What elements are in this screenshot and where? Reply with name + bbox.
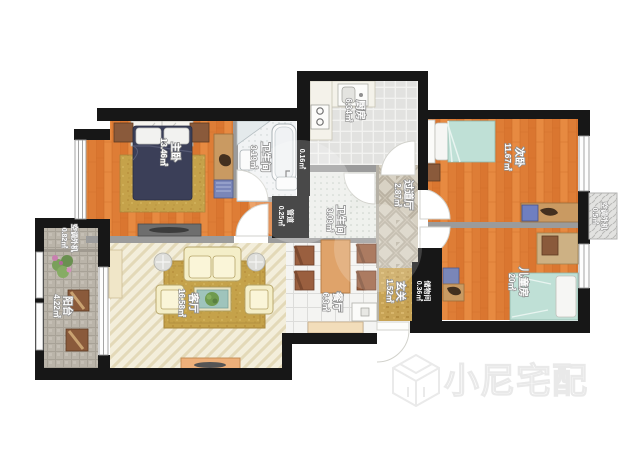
svg-text:主卧: 主卧 [169,142,182,162]
svg-text:过道厅: 过道厅 [402,180,415,210]
svg-text:0.5㎡: 0.5㎡ [591,208,600,225]
svg-text:0.16㎡: 0.16㎡ [298,149,307,170]
svg-text:次卧: 次卧 [513,147,526,167]
svg-text:阳台: 阳台 [61,296,74,316]
svg-text:卫生间: 卫生间 [259,142,272,172]
svg-text:储物间: 储物间 [423,280,432,302]
svg-text:3.09㎡: 3.09㎡ [325,208,335,232]
svg-text:11.67㎡: 11.67㎡ [503,143,513,171]
svg-text:6.34㎡: 6.34㎡ [344,98,354,122]
svg-text:0.36㎡: 0.36㎡ [415,281,424,302]
svg-text:4.22㎡: 4.22㎡ [52,294,62,318]
svg-text:管道: 管道 [286,209,295,223]
svg-text:1.52㎡: 1.52㎡ [385,279,395,303]
svg-text:空调外机: 空调外机 [600,202,609,230]
svg-text:6.3㎡: 6.3㎡ [321,292,331,311]
svg-text:厨房: 厨房 [354,100,367,120]
svg-text:玄关: 玄关 [394,281,407,301]
svg-text:16.58㎡: 16.58㎡ [177,289,187,317]
svg-text:餐厅: 餐厅 [331,291,344,312]
svg-text:2.87㎡: 2.87㎡ [393,183,403,207]
svg-text:0.25㎡: 0.25㎡ [277,206,286,227]
svg-text:小尼宅配: 小尼宅配 [444,361,588,401]
svg-text:20㎡: 20㎡ [507,274,517,291]
svg-text:3.19㎡: 3.19㎡ [249,145,259,169]
svg-text:儿童房: 儿童房 [517,266,530,297]
svg-text:卫生间: 卫生间 [334,205,347,235]
svg-text:空调外机: 空调外机 [70,224,79,252]
svg-text:客厅: 客厅 [187,292,200,313]
svg-text:13.46㎡: 13.46㎡ [159,138,169,166]
svg-text:0.82㎡: 0.82㎡ [60,228,69,249]
